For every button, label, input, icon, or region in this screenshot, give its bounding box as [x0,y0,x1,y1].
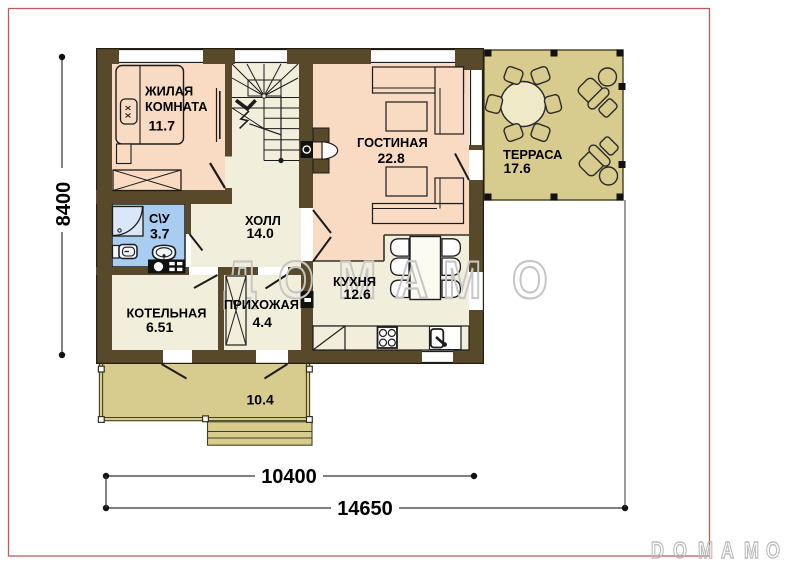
svg-text:10400: 10400 [261,466,317,488]
svg-text:17.6: 17.6 [504,160,531,176]
svg-text:ЖИЛАЯ: ЖИЛАЯ [144,84,193,99]
svg-text:ГОСТИНАЯ: ГОСТИНАЯ [357,135,428,150]
svg-text:14650: 14650 [337,498,393,520]
svg-text:3.7: 3.7 [150,226,170,242]
svg-text:8400: 8400 [53,182,75,227]
svg-text:14.0: 14.0 [247,225,274,241]
svg-text:10.4: 10.4 [247,392,274,408]
svg-text:КОМНАТА: КОМНАТА [145,99,208,114]
svg-text:ПРИХОЖАЯ: ПРИХОЖАЯ [224,297,299,312]
svg-text:6.51: 6.51 [146,319,173,335]
svg-text:4.4: 4.4 [253,314,273,330]
svg-text:22.8: 22.8 [378,150,405,166]
svg-text:11.7: 11.7 [149,118,176,134]
svg-text:С\У: С\У [149,211,171,226]
svg-text:12.6: 12.6 [344,286,371,302]
